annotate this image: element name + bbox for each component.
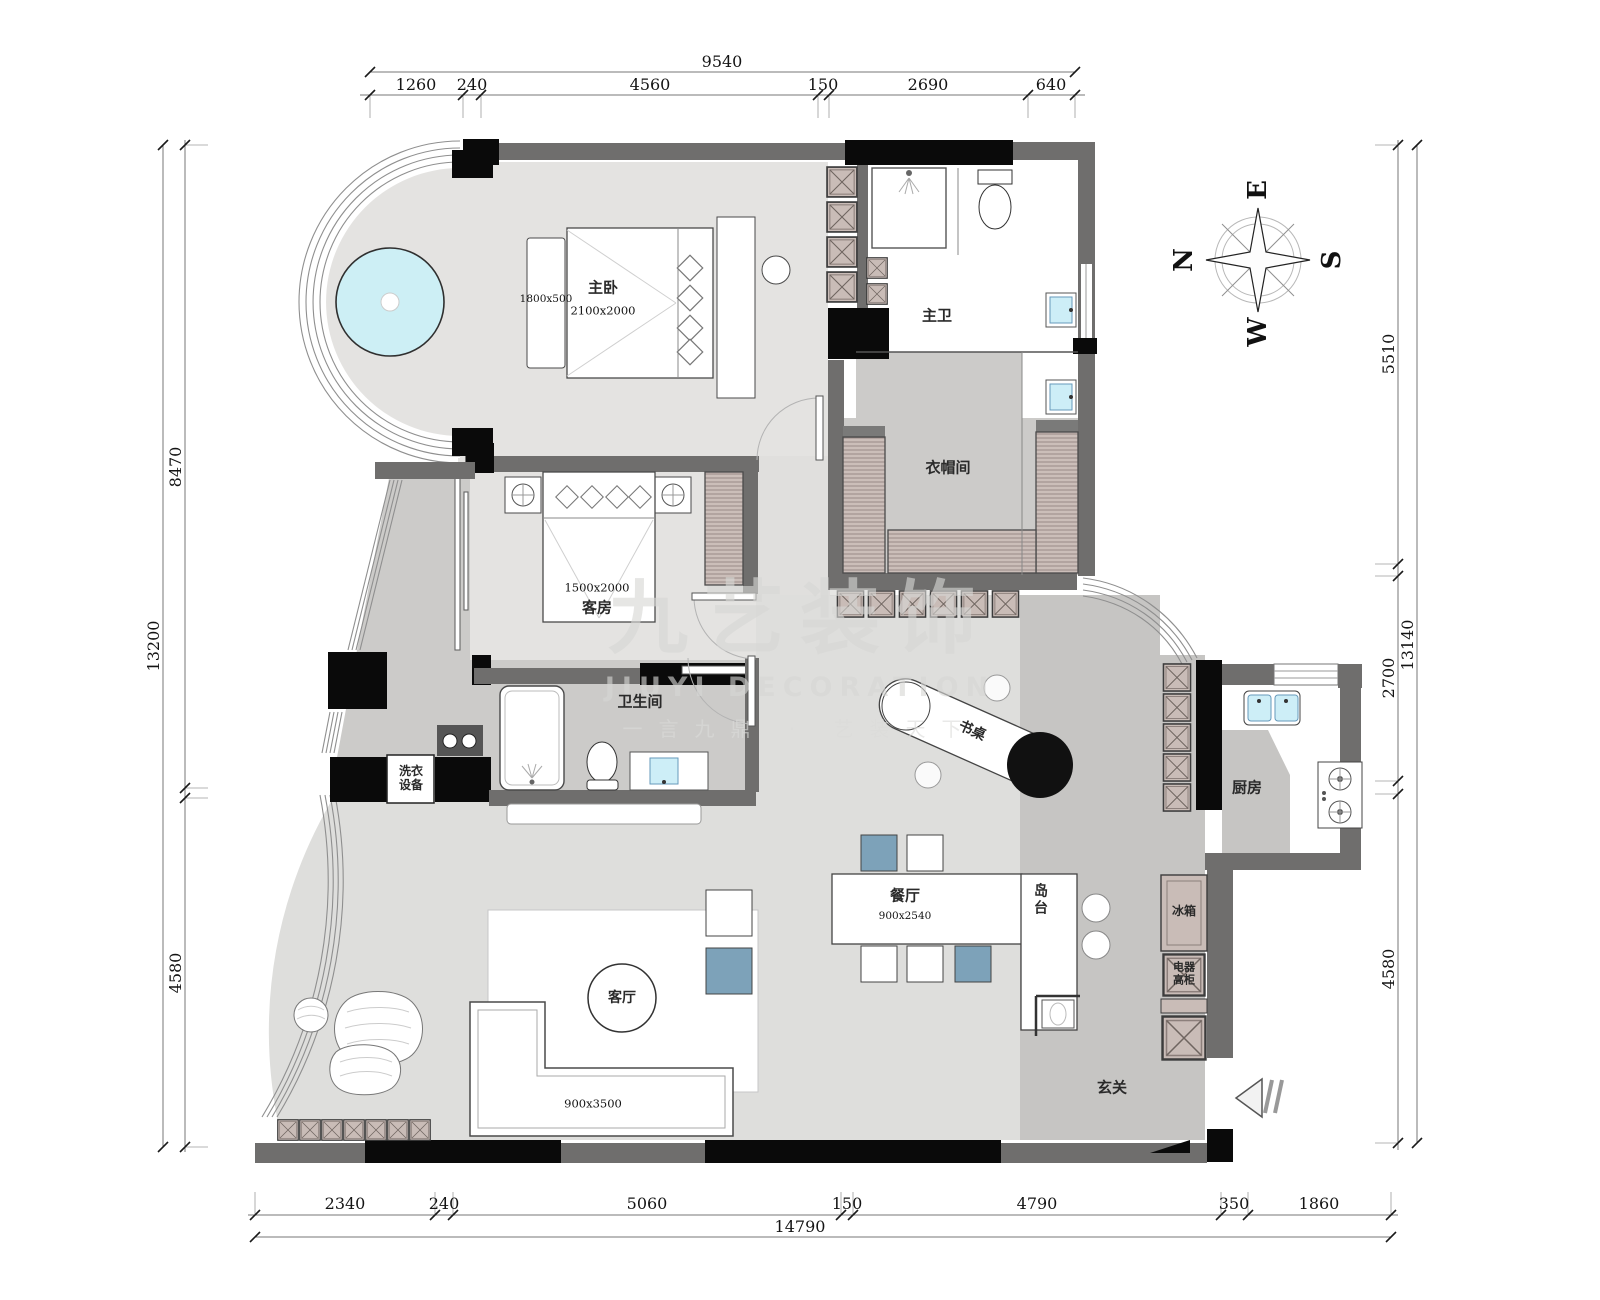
toilet — [587, 742, 617, 782]
headboard-panel — [717, 217, 755, 398]
label-master-bedroom: 主卧 — [588, 279, 618, 296]
floor-plan-page: 九艺装饰 JIUYI DECORATION 一言九鼎 · 艺装天下 主卧 210… — [0, 0, 1600, 1300]
entry-arrow-icon — [1236, 1079, 1282, 1117]
side-table — [762, 256, 790, 284]
dining-chair — [861, 835, 897, 871]
dim-left-seg: 8470 — [167, 447, 185, 488]
compass-w: W — [1243, 317, 1273, 346]
compass-s: S — [1317, 251, 1347, 270]
label-dining: 餐厅 — [890, 887, 920, 904]
dim-bottom-seg: 350 — [1219, 1195, 1250, 1213]
label-bathroom: 卫生间 — [617, 693, 662, 710]
toilet — [979, 185, 1011, 229]
stool — [915, 762, 941, 788]
label-guest-room: 客房 — [582, 599, 612, 616]
dim-top-seg: 240 — [457, 76, 488, 94]
label-fridge: 冰箱 — [1172, 905, 1196, 919]
dim-top-total: 9540 — [702, 53, 743, 71]
dim-bottom-seg: 240 — [429, 1195, 460, 1213]
dim-top-seg: 150 — [808, 76, 839, 94]
dim-right-seg: 2700 — [1380, 658, 1398, 699]
dim-bottom-seg: 2340 — [325, 1195, 366, 1213]
armchair — [330, 1045, 401, 1095]
floor-plan-canvas — [0, 0, 1600, 1300]
toilet-tank — [978, 170, 1012, 184]
stool — [984, 675, 1010, 701]
island-sink — [1042, 1000, 1074, 1028]
dim-bottom-seg: 1860 — [1299, 1195, 1340, 1213]
desk-chair — [882, 682, 930, 730]
stool — [1082, 931, 1110, 959]
dining-chair — [955, 946, 991, 982]
label-laundry-line2: 设备 — [399, 779, 423, 793]
dining-chair — [907, 835, 943, 871]
dim-right-seg: 5510 — [1380, 334, 1398, 375]
dining-chair — [907, 946, 943, 982]
dim-top-seg: 4560 — [630, 76, 671, 94]
compass-rose — [1206, 208, 1310, 312]
label-island: 岛台 — [1032, 883, 1048, 917]
label-laundry: 洗衣 设备 — [399, 765, 423, 793]
dining-chair — [861, 946, 897, 982]
dim-top-seg: 640 — [1036, 76, 1067, 94]
label-master-bed-size: 2100x2000 — [570, 304, 635, 317]
compass-n: N — [1169, 248, 1199, 272]
dim-left-seg: 4580 — [167, 953, 185, 994]
dim-top-seg: 2690 — [908, 76, 949, 94]
dim-top-seg: 1260 — [396, 76, 437, 94]
chair-blue — [706, 948, 752, 994]
label-laundry-line1: 洗衣 — [399, 765, 423, 779]
chair — [706, 890, 752, 936]
black-round-chair — [1007, 732, 1073, 798]
label-appliance-line2: 高柜 — [1173, 974, 1195, 987]
bathtub — [500, 686, 564, 790]
dim-bottom-seg: 4790 — [1017, 1195, 1058, 1213]
dim-left-total: 13200 — [145, 621, 163, 672]
label-dining-size: 900x2540 — [879, 910, 932, 922]
label-kitchen: 厨房 — [1232, 779, 1262, 796]
stool — [1082, 894, 1110, 922]
dim-right-seg: 4580 — [1380, 949, 1398, 990]
label-living: 客厅 — [608, 990, 636, 1006]
label-master-bath: 主卫 — [922, 307, 952, 324]
label-appliance-cabinet: 电器 高柜 — [1173, 961, 1195, 986]
label-closet: 衣帽间 — [925, 459, 970, 476]
dim-bottom-total: 14790 — [775, 1218, 826, 1236]
label-bench-size: 1800x500 — [520, 293, 573, 305]
dim-bottom-seg: 5060 — [627, 1195, 668, 1213]
dim-right-total: 13140 — [1399, 620, 1417, 671]
compass-e: E — [1243, 180, 1273, 200]
label-foyer: 玄关 — [1097, 1079, 1127, 1096]
label-guest-bed-size: 1500x2000 — [564, 581, 629, 594]
label-appliance-line1: 电器 — [1173, 961, 1195, 974]
dim-bottom-seg: 150 — [832, 1195, 863, 1213]
label-sofa-size: 900x3500 — [564, 1097, 622, 1110]
mat — [507, 804, 701, 824]
